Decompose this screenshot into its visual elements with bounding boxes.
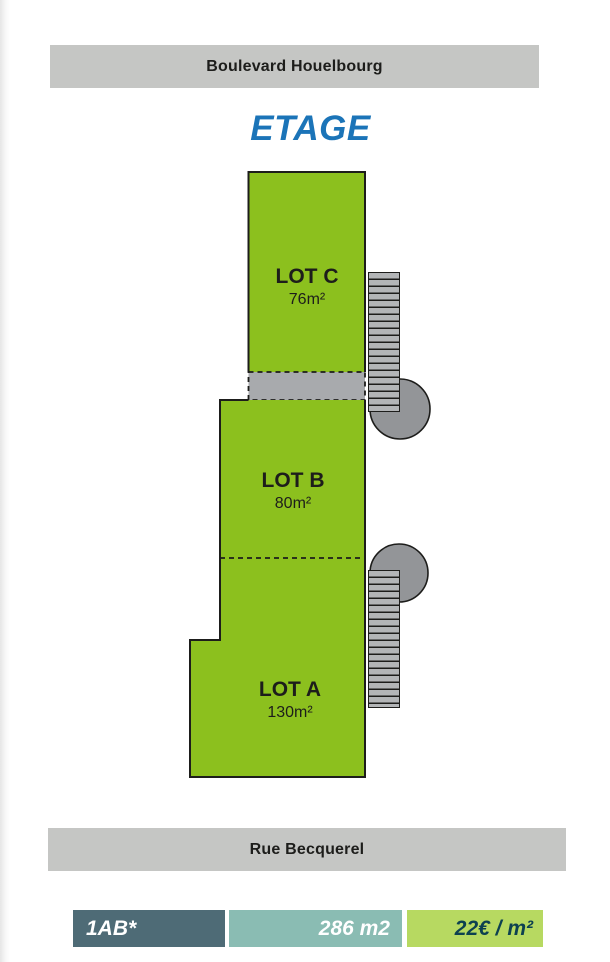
legend-price-badge: 22€ / m²	[407, 910, 543, 947]
lot-b-name: LOT B	[262, 469, 325, 492]
lot-c-area: 76m²	[289, 291, 326, 308]
lot-a-name: LOT A	[259, 678, 321, 701]
floor-plan: LOT C 76m² LOT B 80m² LOT A 130m²	[0, 0, 610, 962]
corridor-shape	[249, 372, 366, 400]
lot-b-area: 80m²	[275, 495, 312, 512]
lot-a-area: 130m²	[267, 704, 313, 721]
staircase-lower	[368, 570, 400, 708]
lot-c-name: LOT C	[276, 265, 339, 288]
legend-total-area-badge: 286 m2	[229, 910, 402, 947]
street-bar-bottom: Rue Becquerel	[48, 828, 566, 871]
street-name-bottom: Rue Becquerel	[250, 841, 365, 859]
floor-plan-page: Boulevard Houelbourg ETAGE LOT C 76m² LO…	[0, 0, 610, 962]
staircase-upper	[368, 272, 400, 412]
legend-reference-badge: 1AB*	[73, 910, 225, 947]
